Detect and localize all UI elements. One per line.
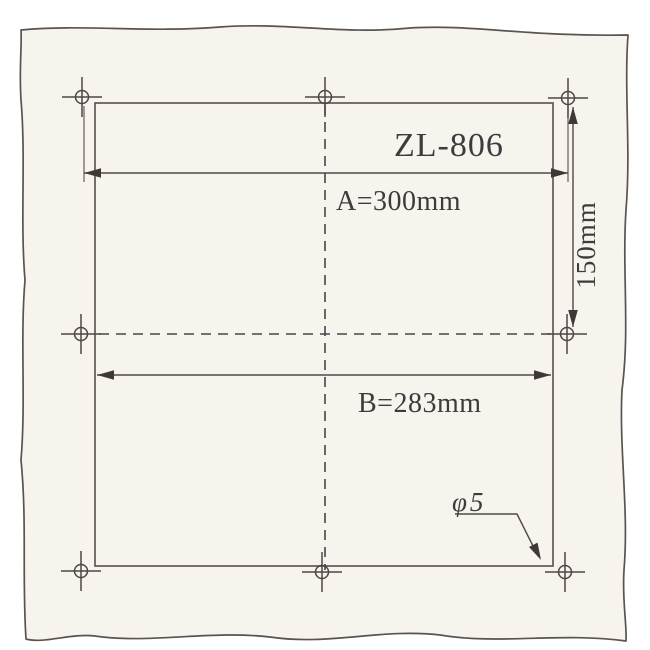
side-dimension-label: 150mm xyxy=(571,201,601,289)
model-label: ZL-806 xyxy=(394,127,504,164)
scanned-drawing-page: ZL-806 A=300mm B=283mm 150mm φ5 xyxy=(0,0,650,650)
dimension-a-label: A=300mm xyxy=(336,186,461,217)
dimension-b-label: B=283mm xyxy=(358,388,482,419)
hole-callout-label: φ5 xyxy=(452,487,486,517)
installation-template-drawing: ZL-806 A=300mm B=283mm 150mm φ5 xyxy=(0,0,650,650)
